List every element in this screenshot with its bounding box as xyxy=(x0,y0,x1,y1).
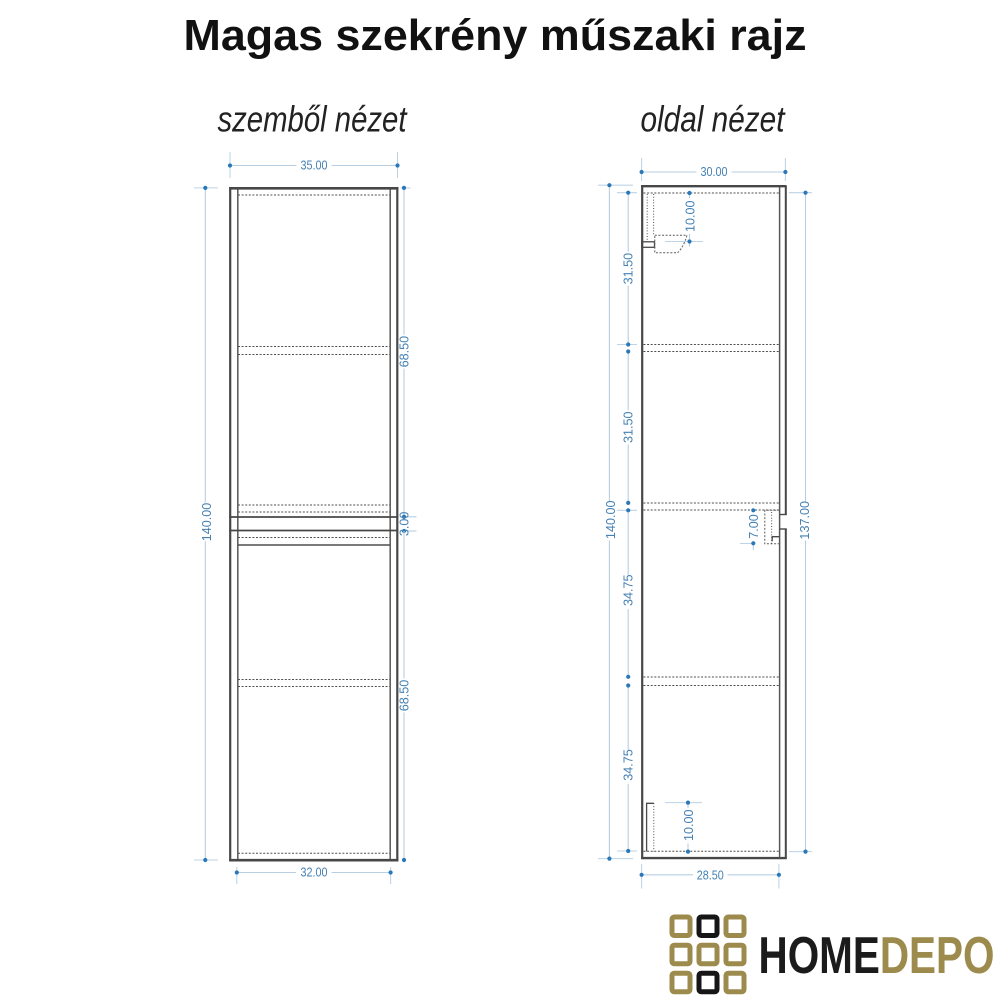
svg-text:34.75: 34.75 xyxy=(621,749,635,781)
svg-text:HOMEDEPO: HOMEDEPO xyxy=(759,926,995,984)
svg-text:Magas szekrény műszaki rajz: Magas szekrény műszaki rajz xyxy=(184,11,807,60)
svg-text:140.00: 140.00 xyxy=(200,503,214,542)
svg-text:137.00: 137.00 xyxy=(798,501,812,540)
svg-text:30.00: 30.00 xyxy=(701,165,728,179)
svg-text:68.50: 68.50 xyxy=(397,336,411,368)
svg-text:68.50: 68.50 xyxy=(397,680,411,712)
svg-text:34.75: 34.75 xyxy=(621,575,635,607)
svg-text:140.00: 140.00 xyxy=(604,501,618,540)
svg-text:10.00: 10.00 xyxy=(683,201,697,233)
svg-text:7.00: 7.00 xyxy=(747,514,761,539)
svg-text:31.50: 31.50 xyxy=(621,412,635,444)
svg-text:10.00: 10.00 xyxy=(682,809,696,841)
svg-text:28.50: 28.50 xyxy=(697,869,724,883)
svg-text:oldal nézet: oldal nézet xyxy=(641,99,787,140)
svg-text:szemből nézet: szemből nézet xyxy=(218,99,409,140)
svg-text:32.00: 32.00 xyxy=(301,866,328,880)
svg-text:31.50: 31.50 xyxy=(621,253,635,285)
svg-text:35.00: 35.00 xyxy=(301,159,328,173)
